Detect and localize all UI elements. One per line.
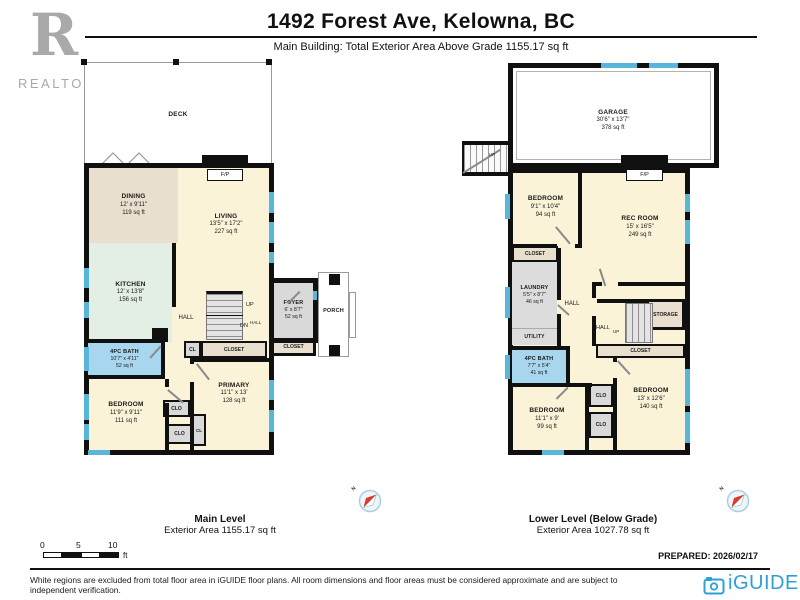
wall [508, 244, 557, 248]
room-garage: GARAGE 30'6" x 13'7" 378 sq ft [528, 96, 698, 146]
closet-clo2-lower: CLO [589, 412, 613, 438]
fireplace-block [202, 155, 248, 168]
scale-bar [43, 552, 119, 558]
iguide-logo-icon [703, 576, 725, 595]
room-bedroom-main-area: 111 sq ft [115, 418, 137, 426]
room-primary-area: 128 sq ft [222, 398, 245, 406]
room-dining-area: 119 sq ft [122, 210, 145, 218]
closet-hall-label: CLOSET [224, 347, 244, 353]
room-bath-main-dims: 10'7" x 4'11" [110, 356, 138, 363]
room-bath-main: 4PC BATH 10'7" x 4'11" 52 sq ft [84, 339, 165, 379]
lower-level-caption: Lower Level (Below Grade) Exterior Area … [493, 514, 693, 536]
window [505, 355, 510, 379]
window [269, 380, 274, 400]
post-marker [173, 59, 179, 65]
wall [618, 282, 690, 286]
window [84, 347, 89, 371]
room-primary-dims: 11'1" x 13' [221, 390, 248, 398]
room-bedroom3-lower: BEDROOM 13' x 12'6" 140 sq ft [617, 372, 685, 427]
main-level-area: Exterior Area 1155.17 sq ft [120, 525, 320, 536]
window [649, 63, 678, 68]
wall [557, 314, 561, 346]
room-garage-name: GARAGE [598, 109, 628, 117]
window [269, 222, 274, 243]
room-rec-room-area: 249 sq ft [628, 232, 651, 240]
room-bath-main-name: 4PC BATH [110, 349, 139, 356]
room-foyer-name: FOYER [284, 300, 304, 307]
room-bedroom2-lower: BEDROOM 11'1" x 9' 99 sq ft [512, 392, 582, 447]
room-dining-name: DINING [122, 193, 146, 201]
scale-segment [100, 552, 119, 558]
room-kitchen-name: KITCHEN [115, 281, 145, 289]
main-level-caption: Main Level Exterior Area 1155.17 sq ft [120, 514, 320, 536]
room-bedroom3-lower-name: BEDROOM [633, 387, 668, 395]
porch-step [349, 292, 356, 338]
wall [578, 168, 582, 248]
storage-label: STORAGE [653, 312, 678, 318]
window [88, 450, 110, 455]
fireplace-main: F/P [207, 169, 243, 181]
room-living: LIVING 13'5" x 17'2" 227 sq ft [180, 196, 272, 254]
stairs-hall-label: HALL [596, 325, 610, 331]
scale-segment [62, 552, 81, 558]
room-foyer-area: 52 sq ft [285, 314, 302, 321]
room-bedroom-main-name: BEDROOM [108, 401, 143, 409]
room-bedroom-main-dims: 11'9" x 9'11" [110, 410, 142, 418]
hall-lower-label: HALL [558, 301, 586, 307]
porch-pillar [329, 345, 340, 356]
room-utility-label: UTILITY [524, 334, 544, 341]
closet-cl2-label: CL [196, 428, 202, 433]
room-bath-lower-name: 4PC BATH [525, 356, 554, 363]
room-bedroom1-lower-dims: 9'1" x 10'4" [531, 204, 561, 212]
room-garage-area: 378 sq ft [601, 125, 624, 133]
hall-label: HALL [170, 315, 202, 321]
room-foyer-dims: 6' x 8'7" [285, 307, 303, 314]
room-bedroom2-lower-dims: 11'1" x 9' [535, 416, 559, 424]
room-living-name: LIVING [215, 213, 238, 221]
closet-top-lower: CLOSET [512, 246, 558, 262]
room-bedroom1-lower: BEDROOM 9'1" x 10'4" 94 sq ft [513, 180, 578, 235]
room-bath-lower-area: 41 sq ft [530, 370, 547, 377]
stairs-up-label: UP [246, 302, 254, 308]
room-bedroom2-lower-name: BEDROOM [529, 407, 564, 415]
room-rec-room-dims: 15' x 16'5" [626, 224, 653, 232]
scale-segment [81, 552, 100, 558]
wall [172, 243, 176, 307]
porch-pillar [329, 274, 340, 285]
page-subtitle: Main Building: Total Exterior Area Above… [85, 41, 757, 53]
room-kitchen-area: 156 sq ft [119, 297, 142, 305]
page-title: 1492 Forest Ave, Kelowna, BC [85, 10, 757, 34]
closet-clo1-label: CLO [171, 406, 182, 412]
room-garage-dims: 30'6" x 13'7" [597, 117, 630, 125]
room-bath-lower: 4PC BATH 7'7" x 5'4" 41 sq ft [508, 346, 570, 387]
wall [165, 379, 169, 387]
window [84, 424, 89, 440]
post-marker [266, 59, 272, 65]
window [542, 450, 564, 455]
room-dining: DINING 12' x 9'11" 119 sq ft [89, 168, 178, 243]
closet-foyer-label: CLOSET [283, 344, 303, 350]
closet-cl2: CL [192, 414, 206, 446]
room-deck: DECK [120, 105, 236, 125]
scale-tick-10: 10 [108, 540, 117, 550]
room-kitchen-dims: 12' x 13'8" [117, 289, 144, 297]
room-bedroom1-lower-area: 94 sq ft [536, 212, 556, 220]
room-laundry-name: LAUNDRY [520, 285, 548, 292]
room-foyer: FOYER 6' x 8'7" 52 sq ft [269, 278, 318, 343]
garage-stairs-up-label: UP [489, 152, 495, 157]
closet-hall: CLOSET [201, 341, 267, 358]
compass-icon [726, 489, 750, 513]
closet-clo1-lower-label: CLO [596, 393, 607, 399]
room-dining-dims: 12' x 9'11" [120, 202, 147, 210]
wall [592, 316, 596, 346]
window [313, 291, 317, 300]
closet-clo2-label: CLO [174, 431, 185, 437]
room-bedroom3-lower-area: 140 sq ft [639, 404, 662, 412]
stairs-lower [625, 303, 653, 343]
title-divider [85, 36, 757, 38]
room-utility: UTILITY [512, 328, 557, 345]
room-bedroom-main: BEDROOM 11'9" x 9'11" 111 sq ft [86, 386, 166, 441]
scale-tick-5: 5 [76, 540, 81, 550]
lower-level-area: Exterior Area 1027.78 sq ft [493, 525, 693, 536]
room-porch-name: PORCH [323, 308, 344, 315]
main-level-title: Main Level [120, 514, 320, 525]
wall [613, 358, 617, 362]
room-laundry-area: 46 sq ft [526, 299, 543, 306]
scale-unit: ft [123, 551, 127, 560]
wall [557, 248, 561, 300]
compass-icon [358, 489, 382, 513]
fireplace-lower: F/P [626, 169, 663, 181]
window [84, 302, 89, 318]
wall [152, 328, 168, 342]
closet-clo2-lower-label: CLO [596, 422, 607, 428]
closet-cl: CL [184, 341, 201, 358]
room-living-area: 227 sq ft [214, 229, 237, 237]
scale-tick-0: 0 [40, 540, 45, 550]
room-laundry-dims: 5'5" x 8'7" [523, 292, 546, 299]
window [269, 192, 274, 213]
realtor-r-icon: R [30, 4, 78, 68]
compass-north-label: N [718, 486, 725, 493]
room-laundry: LAUNDRY 5'5" x 8'7" 46 sq ft [512, 262, 557, 328]
room-bedroom1-lower-name: BEDROOM [528, 195, 563, 203]
wall [597, 299, 646, 303]
window [601, 63, 637, 68]
room-primary-name: PRIMARY [218, 382, 249, 390]
closet-mid-lower-label: CLOSET [630, 348, 650, 354]
closet-clo2: CLO [167, 424, 192, 444]
window [269, 252, 274, 263]
room-bath-main-area: 52 sq ft [116, 363, 133, 370]
closet-clo1-lower: CLO [589, 384, 613, 407]
closet-top-lower-label: CLOSET [525, 251, 545, 257]
wall [592, 282, 602, 286]
wall [190, 358, 194, 364]
window [505, 194, 510, 219]
wall [613, 378, 617, 455]
post-marker [81, 59, 87, 65]
footer-divider [30, 568, 770, 570]
stairs-up-lower-label: UP [613, 329, 619, 334]
window [685, 369, 690, 406]
closet-mid-lower: CLOSET [596, 344, 685, 358]
stairs-dn-hall-label: HALL [250, 320, 261, 325]
room-rec-room-name: REC ROOM [621, 215, 658, 223]
iguide-logo-text: iGUIDE [728, 572, 799, 595]
room-porch: PORCH [318, 305, 349, 319]
window [269, 410, 274, 432]
scale-segment [43, 552, 62, 558]
window [685, 412, 690, 443]
room-bedroom2-lower-area: 99 sq ft [537, 424, 557, 432]
wall [575, 244, 582, 248]
room-rec-room: REC ROOM 15' x 16'5" 249 sq ft [596, 200, 684, 255]
wall [592, 286, 596, 298]
stairs-divider [206, 315, 243, 316]
window [84, 394, 89, 420]
wall [585, 387, 589, 455]
closet-cl-label: CL [189, 347, 196, 353]
room-primary: PRIMARY 11'1" x 13' 128 sq ft [196, 366, 272, 422]
wall [190, 358, 274, 362]
disclaimer-text: White regions are excluded from total fl… [30, 575, 650, 595]
room-living-dims: 13'5" x 17'2" [210, 221, 243, 229]
prepared-date: PREPARED: 2026/02/17 [560, 551, 758, 561]
window [685, 194, 690, 212]
wall [190, 382, 194, 455]
wall [165, 403, 169, 455]
window [685, 220, 690, 244]
window [84, 268, 89, 288]
stairs-dn-label: DN [240, 323, 248, 329]
room-deck-name: DECK [168, 111, 187, 119]
room-bedroom3-lower-dims: 13' x 12'6" [637, 396, 664, 404]
room-bath-lower-dims: 7'7" x 5'4" [528, 363, 551, 370]
lower-level-title: Lower Level (Below Grade) [493, 514, 693, 525]
window [505, 287, 510, 318]
compass-north-label: N [350, 486, 357, 493]
fireplace-block [621, 155, 668, 168]
